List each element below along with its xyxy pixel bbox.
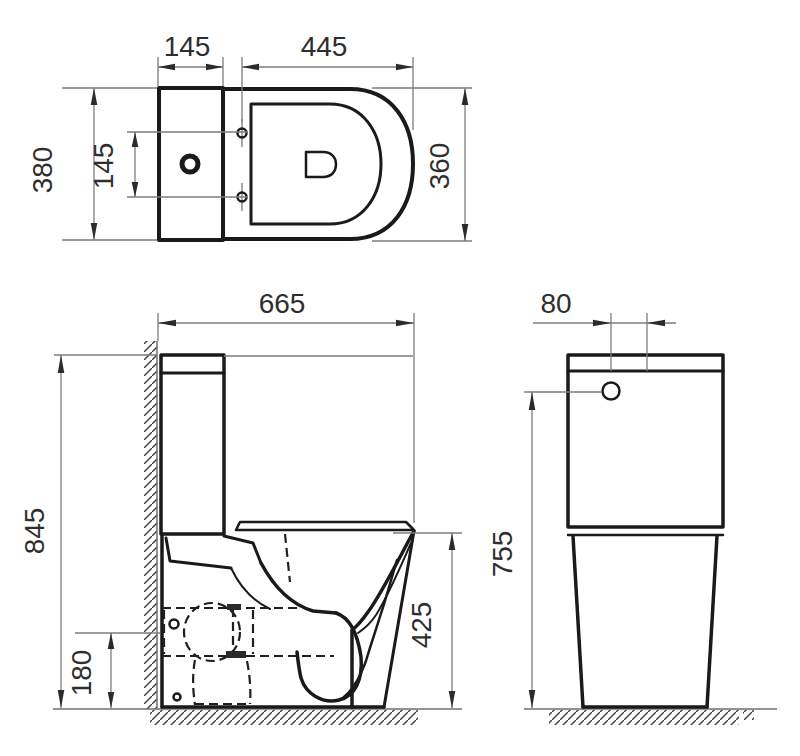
floor-hatch-side bbox=[150, 710, 418, 725]
dim-label-overall-width: 380 bbox=[27, 147, 58, 194]
dim-label-overall-height: 845 bbox=[19, 508, 50, 555]
dim-label-bowl-height: 425 bbox=[406, 602, 437, 649]
fixing-screw-lower bbox=[174, 694, 181, 701]
flush-button-hole bbox=[182, 156, 198, 172]
dim-label-bolt-spacing: 145 bbox=[88, 143, 119, 190]
cistern-front-outline bbox=[568, 355, 723, 527]
pedestal-left-edge bbox=[573, 536, 583, 707]
bowl-back-inner-line bbox=[231, 568, 270, 609]
seat-outer-outline bbox=[225, 89, 413, 239]
dim-label-overall-depth: 665 bbox=[259, 288, 306, 319]
dim-label-cistern-height: 755 bbox=[487, 531, 518, 578]
pedestal-right-edge bbox=[707, 536, 717, 707]
floor-hatch-front bbox=[549, 710, 739, 725]
seat-inner-outline bbox=[251, 104, 381, 224]
dim-label-button-offset: 80 bbox=[540, 288, 571, 319]
hidden-trapway bbox=[162, 534, 334, 705]
dim-bowl-width: 360 bbox=[372, 88, 472, 241]
flush-channel-right bbox=[224, 536, 261, 563]
dim-bowl-length: 445 bbox=[242, 31, 413, 130]
water-spot-outline bbox=[306, 152, 336, 177]
dim-overall-depth: 665 bbox=[158, 288, 414, 523]
dim-label-bowl-width: 360 bbox=[424, 143, 455, 190]
wall-hatch bbox=[144, 341, 157, 709]
cistern-top-outline bbox=[159, 88, 223, 240]
flush-channel-left bbox=[166, 538, 231, 568]
side-view: 665 845 180 425 bbox=[19, 288, 462, 725]
dim-cistern-height: 755 bbox=[487, 392, 602, 708]
flush-button bbox=[603, 383, 620, 400]
dim-tank-depth: 145 bbox=[158, 31, 223, 86]
front-view: 80 755 bbox=[487, 288, 777, 725]
dim-button-offset: 80 bbox=[533, 288, 676, 371]
seat-side-profile bbox=[236, 522, 414, 530]
technical-drawing: 145 445 380 145 bbox=[0, 0, 800, 756]
cistern-side-outline bbox=[161, 355, 224, 534]
dim-label-tank-depth: 145 bbox=[164, 31, 211, 62]
dim-label-outlet-height: 180 bbox=[66, 650, 97, 697]
bowl-interior-back-curve bbox=[261, 563, 336, 613]
fixing-screw-upper bbox=[170, 620, 179, 629]
floor-hatch-front-tail bbox=[743, 710, 754, 720]
drawing-canvas: 145 445 380 145 bbox=[0, 0, 800, 756]
dim-label-bowl-length: 445 bbox=[301, 31, 348, 62]
top-view: 145 445 380 145 bbox=[27, 31, 472, 241]
